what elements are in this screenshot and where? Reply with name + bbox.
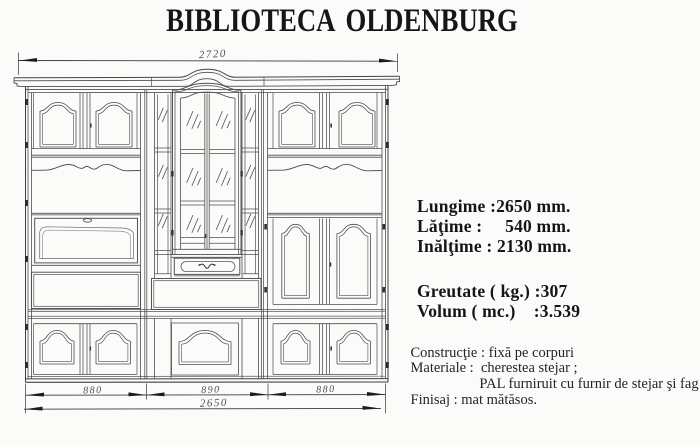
svg-text:880: 880: [316, 384, 336, 396]
svg-text:2650: 2650: [200, 397, 228, 410]
svg-text:880: 880: [83, 385, 103, 397]
svg-text:890: 890: [201, 384, 221, 396]
svg-text:2720: 2720: [199, 48, 228, 61]
